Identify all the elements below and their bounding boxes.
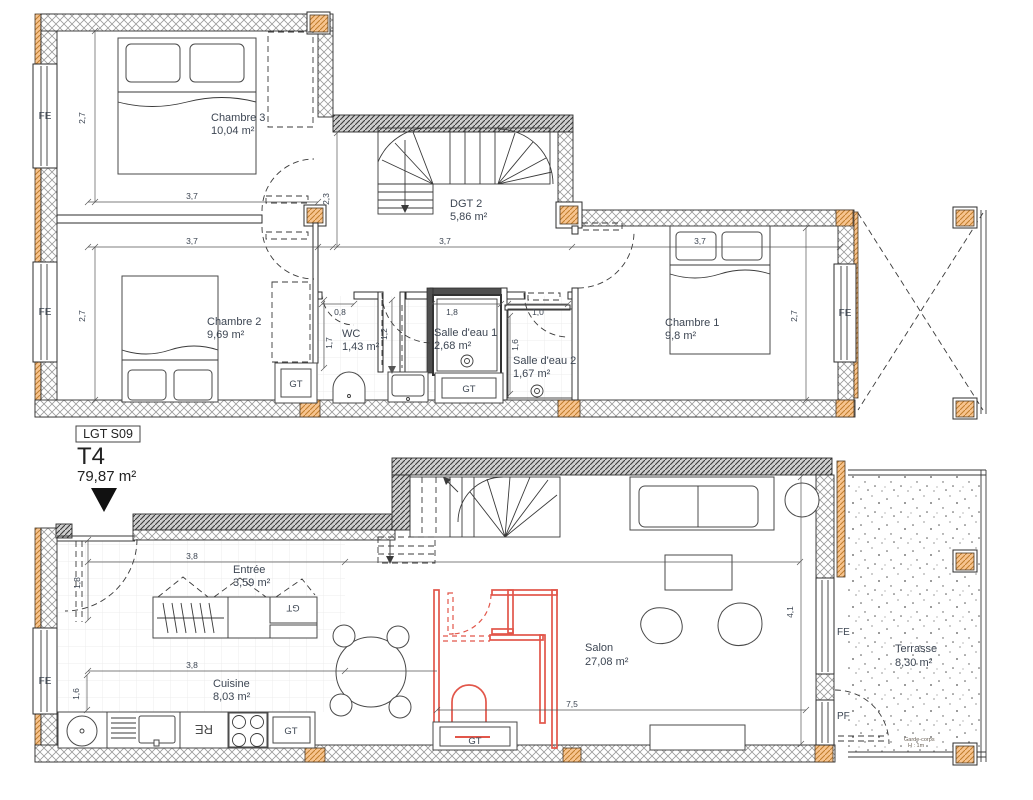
room-name: Entrée [233, 564, 265, 576]
dim-label: 3,7 [186, 191, 198, 201]
unit-code: LGT S09 [83, 427, 133, 441]
room-area: 9,8 m² [665, 330, 697, 342]
duct-label-gt-rotated: GT [286, 602, 299, 613]
room-name: Salle d'eau 1 [434, 327, 497, 339]
duct-label-gt: GT [462, 384, 475, 395]
room-area: 9,69 m² [207, 329, 245, 341]
dim-label: 1,6 [71, 688, 81, 700]
bed-chambre-3 [118, 38, 256, 174]
room-name: Cuisine [213, 678, 250, 690]
window-label-fe: FE [39, 676, 52, 687]
wall-ch1-left [572, 226, 578, 234]
room-area: 27,08 m² [585, 656, 629, 668]
room-name: Chambre 1 [665, 317, 719, 329]
step-wall-left [318, 31, 333, 117]
top-wall-chambre3 [41, 14, 333, 31]
dim-label: 2,3 [321, 193, 331, 205]
washing-machine [67, 716, 97, 746]
dim-label: 4,1 [785, 606, 795, 618]
door-arc-chambre1 [578, 232, 634, 288]
timber-post [558, 400, 580, 417]
room-entree: Entrée 3,59 m² [233, 564, 271, 589]
dim-label: 2,7 [77, 310, 87, 322]
washbasin [388, 372, 428, 402]
room-area: 5,86 m² [450, 211, 488, 223]
stair-down-arrow [401, 205, 409, 213]
timber-post [815, 745, 833, 762]
timber-post [836, 210, 853, 226]
room-area: 10,04 m² [211, 125, 255, 137]
side-table [785, 483, 819, 517]
dim-label: 1,0 [532, 307, 544, 317]
window-label-fe: FE [839, 308, 852, 319]
door-arc-chambre2 [262, 227, 314, 279]
tv-stand [650, 725, 745, 750]
wall-ch3-ch2 [57, 215, 262, 223]
door-label-pf: PF [837, 711, 850, 722]
room-chambre-3: Chambre 3 10,04 m² [211, 112, 265, 137]
wall-jamb [318, 292, 322, 299]
floor-plan-sheet: Chambre 3 10,04 m² DGT 2 5,86 m² Chambre… [0, 0, 1033, 800]
room-name: Salle d'eau 2 [513, 355, 576, 367]
floor-plan-drawing: Chambre 3 10,04 m² DGT 2 5,86 m² Chambre… [0, 0, 1033, 800]
duct-label-gt: GT [468, 736, 481, 747]
step-wall-right [558, 132, 573, 208]
dashed-closet-ch2 [272, 282, 310, 362]
timber-post [563, 748, 581, 762]
lower-floor-plan: Entrée 3,59 m² Cuisine 8,03 m² Salon 27,… [33, 458, 986, 765]
top-wall-chambre1 [573, 210, 838, 226]
red-door-arc [451, 594, 491, 634]
sofa [630, 477, 774, 530]
dim-label: 7,5 [566, 699, 578, 709]
dim-label: 3,7 [694, 236, 706, 246]
unit-type: T4 [77, 443, 105, 470]
window-fe-lower-right [816, 578, 834, 674]
room-area: 1,67 m² [513, 368, 551, 380]
unit-label: LGT S09 T4 79,87 m² [76, 426, 140, 512]
top-wall-stair [333, 115, 573, 132]
dim-label: 3,7 [186, 236, 198, 246]
dim-label: 0,8 [334, 307, 346, 317]
guardrail-upper [953, 207, 986, 419]
room-name: Salon [585, 642, 613, 654]
room-area: 2,68 m² [434, 340, 472, 352]
door-leaf-mark [266, 232, 308, 239]
bed-chambre-2 [122, 276, 218, 402]
top-wall-main [392, 458, 832, 475]
room-area: 3,59 m² [233, 577, 271, 589]
hob [229, 713, 267, 747]
timber-post [836, 400, 854, 417]
room-name: Chambre 2 [207, 316, 261, 328]
timber-post [305, 748, 325, 762]
dim-label: 1,2 [379, 328, 389, 340]
unit-area: 79,87 m² [77, 468, 136, 485]
room-dgt-2: DGT 2 5,86 m² [450, 198, 488, 223]
terrace-area [848, 470, 986, 765]
room-salon: Salon 27,08 m² [585, 642, 629, 668]
timber-post [560, 206, 578, 224]
dim-label: 2,7 [789, 310, 799, 322]
entry-arrow [91, 488, 117, 512]
duct-label-gt: GT [284, 726, 297, 737]
room-name: Terrasse [895, 643, 937, 655]
guardrail-note: H : 1m [908, 743, 925, 749]
pouf [718, 603, 762, 646]
dim-label: 3,8 [186, 551, 198, 561]
duct-label-gt: GT [289, 379, 302, 390]
wall-ch2-wc [313, 223, 318, 363]
wall-ch1-left [572, 288, 578, 400]
low-wall-hatch [133, 514, 395, 530]
wall-corridor [354, 292, 380, 299]
timber-post [307, 208, 323, 223]
dim-label: 3,7 [439, 236, 451, 246]
room-name: WC [342, 328, 360, 340]
fridge-label-re: RE [195, 722, 213, 737]
dashed-closet-ch3 [268, 32, 313, 127]
dim-label: 1,6 [510, 339, 520, 351]
kitchen-counter [58, 712, 315, 748]
dim-label: 3,8 [186, 660, 198, 670]
red-toilet [452, 685, 486, 722]
window-label-fe: FE [39, 111, 52, 122]
room-name: DGT 2 [450, 198, 482, 210]
dim-label: 1,8 [72, 577, 82, 589]
room-area: 8,30 m² [895, 657, 933, 669]
dim-label: 2,7 [77, 112, 87, 124]
terrace-surface [848, 476, 981, 752]
room-cuisine: Cuisine 8,03 m² [213, 678, 251, 703]
window-label-fe: FE [837, 627, 850, 638]
window-fe-lower-left [33, 628, 57, 714]
void-cross [858, 213, 983, 410]
pouf [641, 608, 683, 644]
upper-floor-plan: Chambre 3 10,04 m² DGT 2 5,86 m² Chambre… [33, 12, 986, 419]
window-label-fe: FE [39, 307, 52, 318]
room-chambre-2: Chambre 2 9,69 m² [207, 316, 261, 341]
dining-table [330, 625, 411, 718]
red-door-leaf [448, 593, 453, 634]
room-name: Chambre 3 [211, 112, 265, 124]
room-area: 8,03 m² [213, 691, 251, 703]
low-wall-ins [133, 530, 395, 540]
right-wall-cladding [837, 461, 845, 577]
toilet-wc [333, 372, 365, 403]
timber-post [310, 15, 328, 32]
dim-label: 1,7 [324, 337, 334, 349]
coffee-table [665, 555, 732, 590]
room-area: 1,43 m² [342, 341, 380, 353]
dim-label: 1,8 [446, 307, 458, 317]
stair-step-wall [392, 475, 410, 530]
